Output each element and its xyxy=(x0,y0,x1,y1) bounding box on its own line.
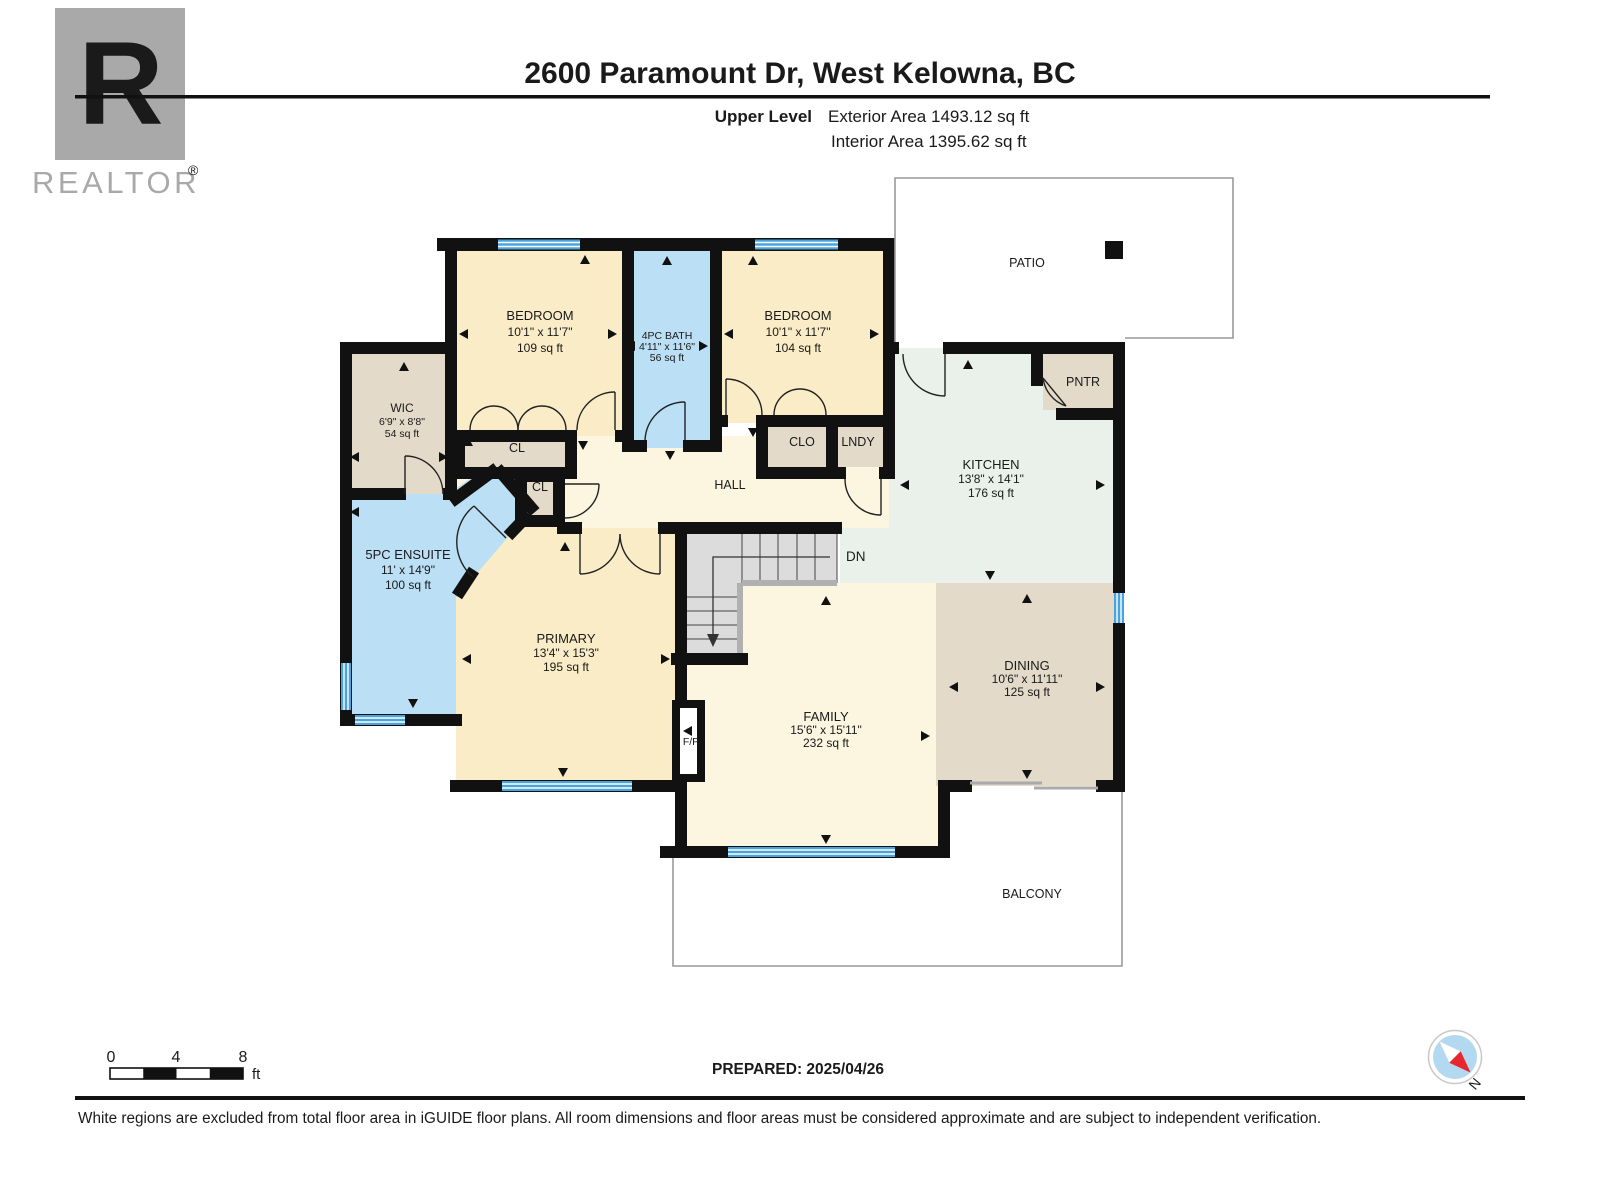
bedroom1-fill xyxy=(451,244,628,436)
interior-area: Interior Area 1395.62 sq ft xyxy=(831,132,1027,151)
room-label-wic: WIC xyxy=(390,401,414,415)
stairs-edge-strip-h xyxy=(742,580,837,586)
window xyxy=(498,240,580,250)
room-area-kitchen: 176 sq ft xyxy=(968,486,1015,500)
room-label-bedroom1: BEDROOM xyxy=(506,308,573,323)
disclaimer-text: White regions are excluded from total fl… xyxy=(78,1110,1321,1127)
patio-outline xyxy=(895,178,1233,342)
header: R REALTOR ® 2600 Paramount Dr, West Kelo… xyxy=(32,8,1490,200)
room-area-bath: 56 sq ft xyxy=(650,352,685,364)
header-rule xyxy=(75,95,1490,99)
scale-unit: ft xyxy=(252,1066,261,1083)
realtor-logo: R REALTOR ® xyxy=(32,8,200,200)
footer: 0 4 8 ft PREPARED: 2025/04/26 N White re… xyxy=(75,1031,1525,1128)
room-dims-ensuite: 11' x 14'9" xyxy=(381,563,435,577)
room-label-primary: PRIMARY xyxy=(537,631,596,646)
room-dims-wic: 6'9" x 8'8" xyxy=(379,416,425,428)
realtor-wordmark: REALTOR xyxy=(32,165,200,200)
room-area-bedroom1: 109 sq ft xyxy=(517,341,564,355)
room-area-ensuite: 100 sq ft xyxy=(385,578,432,592)
room-label-bedroom2: BEDROOM xyxy=(764,308,831,323)
floor-plan-svg: R REALTOR ® 2600 Paramount Dr, West Kelo… xyxy=(0,0,1600,1200)
room-area-family: 232 sq ft xyxy=(803,736,850,750)
room-label-closet2: CL xyxy=(532,480,548,494)
floor-plan-page: R REALTOR ® 2600 Paramount Dr, West Kelo… xyxy=(0,0,1600,1200)
realtor-logo-letter: R xyxy=(78,18,163,150)
compass-icon: N xyxy=(1429,1031,1485,1094)
stairs-down-label: DN xyxy=(846,549,866,564)
window xyxy=(502,781,632,791)
room-label-closet1: CL xyxy=(509,441,525,455)
room-label-ensuite: 5PC ENSUITE xyxy=(365,547,451,562)
prepared-date: PREPARED: 2025/04/26 xyxy=(712,1061,884,1078)
room-label-fireplace: F/P xyxy=(683,736,699,748)
window xyxy=(728,847,895,857)
room-dims-family: 15'6" x 15'11" xyxy=(790,723,862,737)
room-dims-primary: 13'4" x 15'3" xyxy=(533,646,599,660)
scale-tick-4: 4 xyxy=(172,1049,181,1066)
scale-tick-0: 0 xyxy=(107,1049,116,1066)
floor-plan: BEDROOM 10'1" x 11'7" 109 sq ft 4PC BATH… xyxy=(340,178,1233,966)
window xyxy=(355,715,405,725)
room-dims-kitchen: 13'8" x 14'1" xyxy=(958,472,1024,486)
level-label: Upper Level xyxy=(715,107,812,126)
room-label-patio: PATIO xyxy=(1009,256,1045,270)
room-dims-bedroom2: 10'1" x 11'7" xyxy=(766,325,831,339)
scale-bar: 0 4 8 ft xyxy=(107,1049,262,1083)
room-label-clo: CLO xyxy=(789,435,815,449)
room-area-dining: 125 sq ft xyxy=(1004,685,1051,699)
exterior-area: Exterior Area 1493.12 sq ft xyxy=(828,107,1030,126)
scale-bar-seg xyxy=(210,1068,243,1079)
room-area-primary: 195 sq ft xyxy=(543,660,590,674)
footer-rule xyxy=(75,1096,1525,1100)
room-dims-bedroom1: 10'1" x 11'7" xyxy=(508,325,573,339)
room-label-balcony: BALCONY xyxy=(1002,887,1062,901)
room-area-wic: 54 sq ft xyxy=(385,428,420,440)
window xyxy=(755,240,838,250)
window xyxy=(1114,593,1124,623)
scale-tick-8: 8 xyxy=(239,1049,248,1066)
window xyxy=(341,663,351,710)
page-title: 2600 Paramount Dr, West Kelowna, BC xyxy=(524,57,1075,90)
room-label-lndy: LNDY xyxy=(841,435,875,449)
room-area-bedroom2: 104 sq ft xyxy=(775,341,822,355)
room-dims-dining: 10'6" x 11'11" xyxy=(992,672,1063,686)
scale-bar-seg xyxy=(143,1068,176,1079)
room-label-pantry: PNTR xyxy=(1066,375,1100,389)
patio-post xyxy=(1105,241,1123,259)
room-label-dining: DINING xyxy=(1004,658,1050,673)
room-label-kitchen: KITCHEN xyxy=(962,457,1019,472)
room-label-hall: HALL xyxy=(714,478,745,492)
room-label-family: FAMILY xyxy=(803,709,849,724)
registered-mark: ® xyxy=(188,162,199,178)
stairs-edge-strip-v xyxy=(737,583,743,653)
